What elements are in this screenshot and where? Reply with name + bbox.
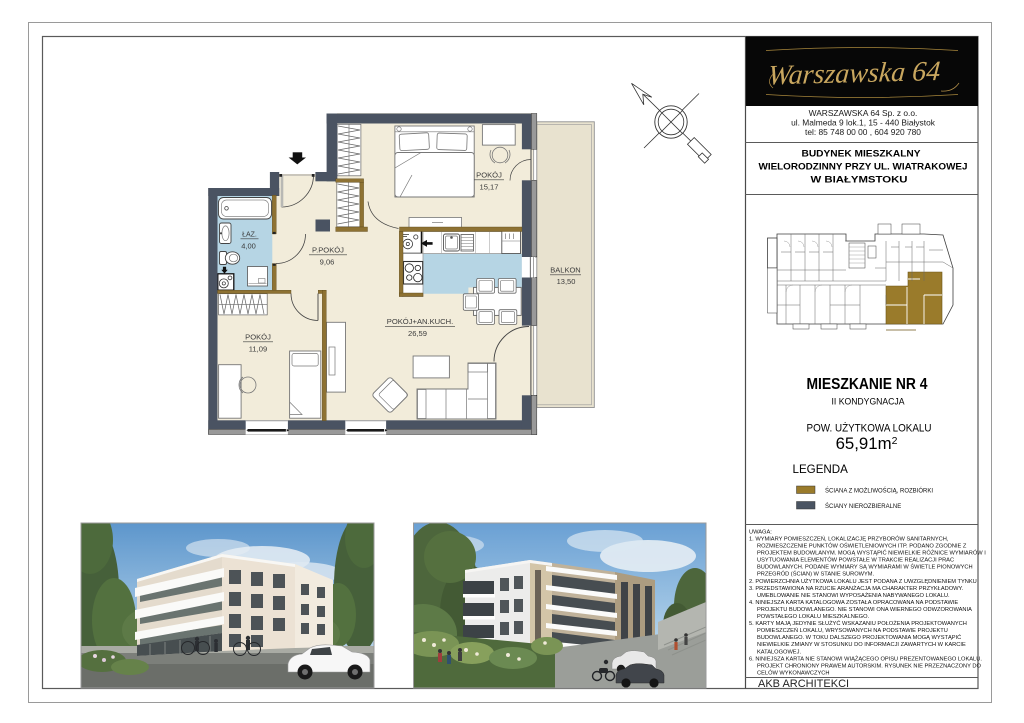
svg-text:PRZEGRÓD (ŚCIAN) W STANIE SURO: PRZEGRÓD (ŚCIAN) W STANIE SUROWYM. [757,570,875,578]
svg-text:11,09: 11,09 [249,345,267,354]
svg-text:WIELORODZINNY PRZY UL. WIATRAK: WIELORODZINNY PRZY UL. WIATRAKOWEJ [759,162,968,172]
svg-text:PROJEKTU BUDOWLANEGO. NIE STAN: PROJEKTU BUDOWLANEGO. NIE STANOWI ONA WI… [757,607,972,613]
svg-text:PROJEKTEM BUDOWLANYM. MOGĄ WYS: PROJEKTEM BUDOWLANYM. MOGĄ WYSTĄPIĆ NIEW… [757,550,986,557]
svg-text:ŚCIANY NIEROZBIERALNE: ŚCIANY NIEROZBIERALNE [825,502,901,510]
svg-text:ŁAZ.: ŁAZ. [242,232,257,239]
svg-text:AKB ARCHITEKCI: AKB ARCHITEKCI [758,678,849,690]
svg-text:ul. Malmeda 9 lok.1, 15 - 4: ul. Malmeda 9 lok.1, 15 - 440 Białystok [791,118,936,128]
svg-text:15,17: 15,17 [479,183,498,192]
svg-text:1. WYMIARY POMIESZCZEŃ, LOKA: 1. WYMIARY POMIESZCZEŃ, LOKALIZACJĘ PRZY… [749,536,949,543]
svg-text:65,91m2: 65,91m2 [836,434,898,453]
svg-text:ROZMIESZCZENIE PUNKTÓW OŚWIETL: ROZMIESZCZENIE PUNKTÓW OŚWIETLENIOWYCH I… [757,542,967,550]
svg-text:BUDOWLANYCH. PODANE WYMIARY SĄ: BUDOWLANYCH. PODANE WYMIARY SĄ WYMIARAMI… [757,563,973,571]
svg-text:6. NINIEJSZA KARTA NIE STANO: 6. NINIEJSZA KARTA NIE STANOWI WIĄŻĄCEGO… [749,655,982,662]
svg-text:PROJEKT CHRONIONY PRAWEM AUTOR: PROJEKT CHRONIONY PRAWEM AUTORSKIM. RYSU… [757,663,982,669]
svg-text:9,06: 9,06 [320,258,335,267]
svg-text:2. POWIERZCHNIA UŻYTKOWA LOK: 2. POWIERZCHNIA UŻYTKOWA LOKALU JEST POD… [749,578,977,585]
svg-text:ŚCIANA Z MOŻLIWOŚCIĄ, ROZBI: ŚCIANA Z MOŻLIWOŚCIĄ, ROZBIÓRKI [825,486,933,494]
svg-text:MIESZKANIE NR 4: MIESZKANIE NR 4 [807,376,928,393]
svg-text:13,50: 13,50 [557,277,576,286]
svg-text:POMIESZCZEŃ LOKALU, WRYSOWANYC: POMIESZCZEŃ LOKALU, WRYSOWANYCH NA PODST… [757,627,948,634]
svg-text:P.POKÓJ: P.POKÓJ [312,246,344,255]
svg-text:4,00: 4,00 [241,242,256,251]
svg-text:Warszawska 64: Warszawska 64 [767,56,942,92]
svg-text:POKÓJ: POKÓJ [245,333,271,342]
svg-text:UWAGA:: UWAGA: [749,530,772,536]
svg-text:tel: 85 748 00 00 , 604 920 7: tel: 85 748 00 00 , 604 920 780 [805,127,921,137]
svg-text:LEGENDA: LEGENDA [793,463,849,476]
svg-text:BUDOWLANEGO. W TOKU DALSZEGO P: BUDOWLANEGO. W TOKU DALSZEGO PROJEKTOWAN… [757,634,961,641]
svg-text:UMEBLOWANIE NIE STANOWI WYPOSA: UMEBLOWANIE NIE STANOWI WYPOSAŻENIA NABY… [757,592,950,599]
svg-text:KATALOGOWEJ.: KATALOGOWEJ. [757,649,801,655]
svg-text:POKÓJ+AN.KUCH.: POKÓJ+AN.KUCH. [387,317,453,326]
svg-text:USYTUOWANIA ELEMENTÓW POWSTAŁE: USYTUOWANIA ELEMENTÓW POWSTAŁE W TRAKCIE… [757,557,954,564]
svg-text:NIEWIELKIE ZMIANY W STOSUNKU D: NIEWIELKIE ZMIANY W STOSUNKU DO INFORMAC… [757,642,966,648]
svg-text:3. PRZEDSTAWIONA NA RZUCIE A: 3. PRZEDSTAWIONA NA RZUCIE ARANŻACJA MA … [749,585,964,592]
svg-text:CELÓW WYKONAWCZYCH: CELÓW WYKONAWCZYCH [757,669,829,676]
svg-text:POW. UŻYTKOWA LOKALU: POW. UŻYTKOWA LOKALU [807,422,932,435]
svg-text:BALKON: BALKON [550,266,580,275]
svg-text:4. NINIEJSZA KARTA KATALOGOW: 4. NINIEJSZA KARTA KATALOGOWA ZOSTAŁA OP… [749,600,958,606]
svg-text:II KONDYGNACJA: II KONDYGNACJA [832,397,905,407]
svg-text:WARSZAWSKA 64 Sp. z o.o.: WARSZAWSKA 64 Sp. z o.o. [809,108,918,118]
svg-text:POKÓJ: POKÓJ [476,171,502,180]
svg-text:BUDYNEK MIESZKALNY: BUDYNEK MIESZKALNY [802,149,921,159]
svg-text:POWSTAŁEGO LOKALU MIESZKALNEGO: POWSTAŁEGO LOKALU MIESZKALNEGO. [757,614,870,620]
svg-text:5. KARTY MAJĄ JEDYNIE SŁUŻYĆ: 5. KARTY MAJĄ JEDYNIE SŁUŻYĆ WSKAZANIU P… [749,620,967,627]
svg-text:26,59: 26,59 [408,329,427,338]
svg-text:W BIAŁYMSTOKU: W BIAŁYMSTOKU [811,175,908,185]
